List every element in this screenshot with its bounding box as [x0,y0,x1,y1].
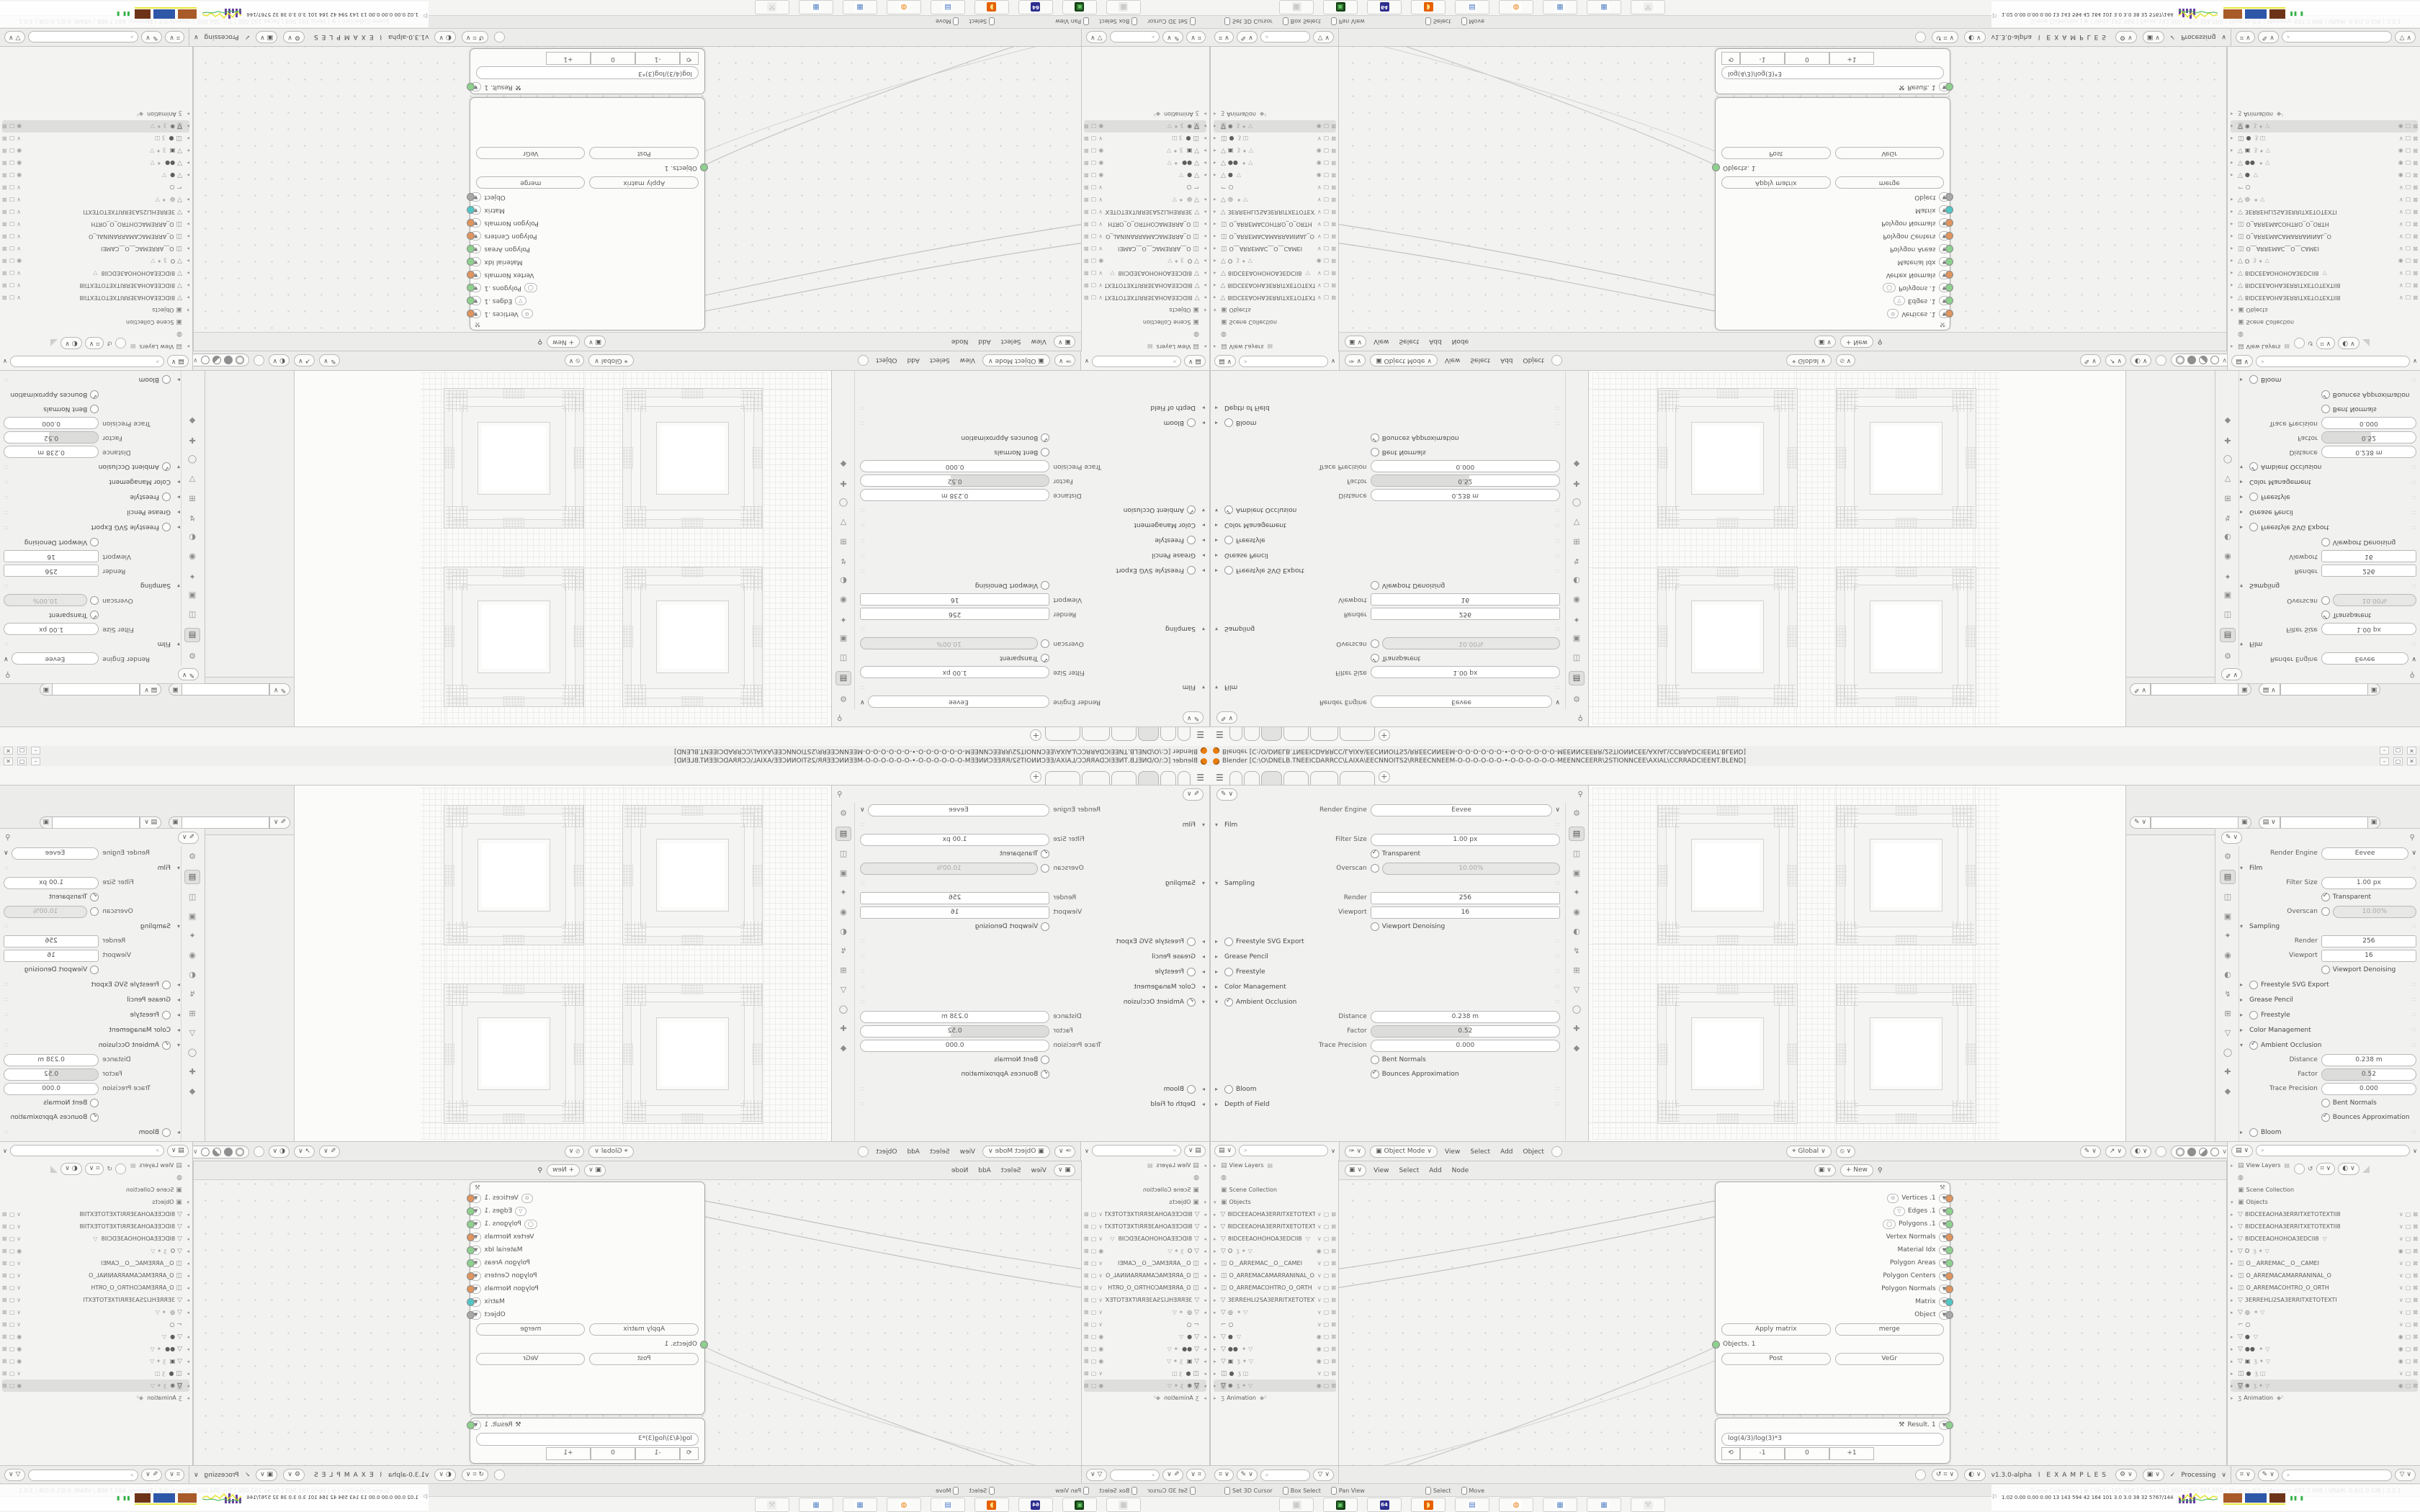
socket-dot[interactable] [467,1207,475,1215]
checkbox[interactable] [90,538,99,546]
image-id-name-field[interactable] [52,816,140,829]
value-field[interactable]: 1.00 px [860,834,1049,846]
properties-tab-icon[interactable]: ✦ [836,886,851,899]
properties-tab-icon[interactable]: ◯ [185,453,200,466]
checkbox[interactable] [1371,639,1379,648]
hide-toggle[interactable]: ∨ [17,1321,21,1328]
render-toggle[interactable]: ⊠ [1084,123,1089,130]
display-mode-icon[interactable]: ▤∨ [1214,356,1236,368]
screen-toggle[interactable]: ▢ [2406,148,2411,154]
copy-icon[interactable]: ▣ [40,683,53,696]
object-row[interactable]: ▸◫O_ARREMACAMARRANINAL_O∨▢⊠ [1214,1269,1336,1282]
menu-select[interactable]: Select [930,1148,950,1156]
checkbox[interactable] [1224,998,1233,1007]
screen-toggle[interactable]: ▢ [1324,172,1330,179]
scene-row[interactable]: ◍ [1214,328,1336,341]
screen-toggle[interactable]: ▢ [9,172,15,179]
brush-id-name-field[interactable] [181,683,269,696]
properties-tab-icon[interactable]: ▽ [2220,1027,2235,1040]
slider-field[interactable]: 0.52 [2321,1068,2416,1081]
nav-circle-icon[interactable] [494,1470,505,1480]
expr-cell[interactable]: -1 [1740,52,1785,65]
close-button[interactable]: ✕ [2407,747,2416,755]
objects-collection-row[interactable]: ▾▣Objects [1214,304,1336,316]
wrench-icon[interactable]: ⚒ [1940,1184,1945,1192]
annotation-circle-icon[interactable] [858,355,869,366]
section-color-management[interactable]: ▸Color Management∷ [4,1022,180,1038]
render-toggle[interactable]: ⊠ [1084,1236,1089,1242]
orientation-dropdown[interactable]: ⌖Global∨ [588,354,633,366]
properties-tab-icon[interactable]: ↯ [836,554,851,567]
pinned-app-ghost[interactable]: ▦ [1279,0,1314,14]
material-shading-icon[interactable] [212,356,221,365]
object-row[interactable]: ▸◫O_ARREMACAMARRANINAL_O∨▢⊠ [2231,1269,2418,1282]
socket-dot[interactable] [467,1298,475,1306]
render-toggle[interactable]: ⊠ [2,172,7,179]
refresh-icon[interactable]: ↺ [2308,1166,2313,1173]
object-row[interactable]: ▸▽3ERREHLI2SA3ERRITXETOTEXTI∨▢⊠ [1214,206,1336,218]
properties-tab-icon[interactable]: ◐ [185,531,200,544]
workspace-tab[interactable] [1082,727,1110,741]
node-button-post[interactable]: Post [1721,147,1831,159]
firefox[interactable]: ◗ [974,0,1009,14]
section-depth-of-field[interactable]: ▸Depth of Field∷ [860,400,1205,415]
render-engine-dropdown[interactable]: Eevee [12,653,99,665]
render-toggle[interactable]: ⊠ [2,148,7,154]
screen-toggle[interactable]: ▢ [9,1297,15,1303]
render-toggle[interactable]: ⊠ [2413,294,2418,301]
hide-toggle[interactable]: ∨ [1098,209,1103,215]
socket-dot[interactable] [467,1194,475,1202]
animation-row[interactable]: ▸ʒAnimation◆² [2,1392,189,1404]
rendered-shading-icon[interactable] [2210,356,2219,365]
render-toggle[interactable]: ⊠ [1331,294,1336,301]
scene-row[interactable]: ◍ [1084,328,1206,341]
render-toggle[interactable]: ⊠ [1331,1211,1336,1218]
node-button-post[interactable]: Post [590,1353,699,1365]
screen-toggle[interactable]: ▢ [2406,1346,2411,1352]
pinned-app-ghost-2[interactable]: ⚒ [1631,1498,1665,1512]
properties-tab-icon[interactable]: ▣ [2220,910,2235,923]
render-toggle[interactable]: ⊠ [1331,172,1336,179]
an-editor-icon[interactable]: ▣∨ [2143,1469,2164,1481]
screen-toggle[interactable]: ▢ [2406,197,2411,203]
properties-tab-icon[interactable]: ↯ [836,945,851,958]
screen-toggle[interactable]: ▢ [1324,221,1330,228]
image-id-icon[interactable]: ▤∨ [140,816,161,829]
checkbox[interactable] [1041,654,1049,662]
node-button-vegr[interactable]: VeGr [1835,147,1945,159]
properties-tab-icon[interactable]: ⊞ [1569,964,1584,977]
screen-toggle[interactable]: ▢ [1324,258,1330,264]
object-row[interactable]: ▸▽◎✦ ▽∨▢⊠ [2,194,189,206]
properties-tab-icon[interactable]: ⚙ [836,807,851,820]
pin-icon[interactable]: ⚲ [837,791,842,798]
add-workspace-button[interactable]: + [1030,771,1041,783]
properties-tab-icon[interactable]: ◫ [1569,847,1584,860]
socket-dot[interactable] [467,1285,475,1293]
outliner-search-input[interactable]: ⌕ [10,1145,164,1156]
scene-collection-row[interactable]: ▣Scene Collection [2,316,189,328]
checkbox[interactable] [2321,596,2330,605]
render-toggle[interactable]: ⊠ [2,246,7,252]
object-row[interactable]: ▸▽⊕ʒ ✦ ▽◉▢⊠ [1214,1380,1336,1392]
hide-toggle[interactable]: ∨ [2399,197,2403,203]
hide-toggle[interactable]: ◉ [1098,1248,1103,1254]
section-freestyle-svg-export[interactable]: ▸Freestyle SVG Export∷ [2240,520,2416,535]
image-id-icon[interactable]: ▤∨ [2259,816,2280,829]
value-field[interactable]: 0.000 [1371,461,1560,473]
render-toggle[interactable]: ⊠ [1084,270,1089,276]
menu-select[interactable]: Select [1001,1167,1021,1174]
firefox[interactable]: ◗ [974,1498,1009,1512]
value-field[interactable]: 0.000 [860,461,1049,473]
object-row[interactable]: ▸▽●●✦ ▽◉▢⊠ [2,157,189,169]
screen-toggle[interactable]: ▢ [1091,135,1097,142]
properties-tab-icon[interactable]: ▽ [185,1027,200,1040]
object-row[interactable]: ▸◫●ʒ ◫∨▢⊠ [1214,1367,1336,1380]
blender-app[interactable]: ◍ [887,1498,921,1512]
workspace-tab[interactable] [1340,771,1375,785]
object-row[interactable]: ⌐○∨▢⊠ [2,1318,189,1331]
section-film[interactable]: ▾Film∷ [1215,680,1560,695]
screen-toggle[interactable]: ▢ [2406,270,2411,276]
options-circle-icon[interactable] [2156,355,2166,366]
scene-collection-row[interactable]: ▣Scene Collection [2,1184,189,1196]
section-freestyle-svg-export[interactable]: ▸Freestyle SVG Export∷ [860,934,1205,949]
hide-toggle[interactable]: ∨ [1098,197,1103,203]
value-field[interactable]: 0.238 m [1371,490,1560,502]
blender-app[interactable]: ◍ [1499,0,1533,14]
render-toggle[interactable]: ⊠ [1331,258,1336,264]
value-field[interactable]: 10.00% [860,638,1038,650]
checkbox[interactable] [90,1099,99,1107]
hide-toggle[interactable]: ∨ [2399,1236,2403,1242]
screen-toggle[interactable]: ▢ [2406,209,2411,215]
object-row[interactable]: ▸▽8IDCEEAOHOHOA3EDCII8▽∨▢⊠ [1084,1233,1206,1245]
render-toggle[interactable]: ⊠ [2413,1248,2418,1254]
properties-tab-icon[interactable]: ▣ [836,632,851,645]
snap-magnet-icon[interactable]: ⦸∨ [565,354,584,366]
screen-toggle[interactable]: ▢ [9,123,15,130]
nav-circle-icon[interactable] [1915,1470,1926,1480]
checkbox[interactable] [2321,1099,2330,1107]
screen-toggle[interactable]: ▢ [1091,1248,1097,1254]
section-film[interactable]: ▾Film∷ [860,817,1205,832]
screen-toggle[interactable]: ▢ [9,1260,15,1266]
hide-toggle[interactable]: ◉ [2398,1382,2403,1389]
hide-toggle[interactable]: ∨ [2399,1211,2403,1218]
checkbox[interactable] [1371,864,1379,873]
object-row[interactable]: ▸◫O_ARREMACOHTRO_O_ORTH∨▢⊠ [1084,218,1206,230]
calculator[interactable]: ▦ [1543,1498,1577,1512]
properties-tab-icon[interactable]: ⊞ [2220,492,2235,505]
objects-collection-row[interactable]: ▾▣Objects [2231,304,2418,316]
hide-toggle[interactable]: ∨ [1098,1297,1103,1303]
screen-toggle[interactable]: ▢ [1091,1297,1097,1303]
xray-icon[interactable]: ◐∨ [2130,1146,2151,1158]
render-toggle[interactable]: ⊠ [1331,1321,1336,1328]
properties-tab-icon[interactable]: ▣ [185,910,200,923]
menu-hamburger-icon[interactable]: ☰ [1216,729,1224,739]
render-toggle[interactable]: ⊠ [2,221,7,228]
socket-dot[interactable] [467,1220,475,1228]
socket-dot[interactable] [467,1272,475,1280]
render-toggle[interactable]: ⊠ [1084,135,1089,142]
render-toggle[interactable]: ⊠ [2413,270,2418,276]
screen-toggle[interactable]: ▢ [2406,1248,2411,1254]
socket-dot[interactable] [467,1259,475,1267]
copy-icon[interactable]: ▣ [2368,816,2381,829]
outliner-search-input[interactable]: ⌕ [1239,356,1328,367]
screen-toggle[interactable]: ▢ [9,1358,15,1364]
hide-toggle[interactable]: ◉ [1317,1346,1322,1352]
hide-toggle[interactable]: ∨ [17,233,21,240]
hide-toggle[interactable]: ∨ [17,1297,21,1303]
hide-toggle[interactable]: ∨ [17,135,21,142]
hide-toggle[interactable]: ∨ [1098,1236,1103,1242]
render-toggle[interactable]: ⊠ [1084,1346,1089,1352]
section-grease-pencil[interactable]: ▸Grease Pencil∷ [860,548,1205,563]
render-toggle[interactable]: ⊠ [1331,123,1336,130]
screen-toggle[interactable]: ▢ [9,197,15,203]
checkbox[interactable] [162,463,171,472]
render-toggle[interactable]: ⊠ [1331,209,1336,215]
section-freestyle-svg-export[interactable]: ▸Freestyle SVG Export∷ [1215,934,1560,949]
hide-toggle[interactable]: ∨ [1317,197,1322,203]
section-color-management[interactable]: ▸Color Management∷ [2240,1022,2416,1038]
properties-tab-icon[interactable]: ✚ [1569,1022,1584,1035]
value-field[interactable]: 0.000 [4,418,99,430]
screen-toggle[interactable]: ▢ [9,1309,15,1315]
properties-tab-icon[interactable]: ✦ [185,930,200,942]
value-field[interactable]: 1.00 px [4,624,99,636]
checkbox[interactable] [1371,433,1379,442]
object-row[interactable]: ▸▽Oʒ ✦ ▽◉▢⊠ [2,255,189,267]
properties-tab-icon[interactable]: ▽ [185,472,200,485]
object-row[interactable]: ▸▽▣ʒ ✦ ▽◉▢⊠ [1084,145,1206,157]
socket-dot[interactable] [1945,1194,1953,1202]
object-row[interactable]: ▸▽8IDCEEAOHA3ERRITXETOTEXTII8∨▢⊠ [1084,292,1206,304]
hide-toggle[interactable]: ∨ [2399,1260,2403,1266]
hide-toggle[interactable]: ◉ [17,1346,22,1352]
area-resize-corner-icon[interactable] [50,1166,58,1173]
properties-tab-icon[interactable]: ◆ [836,1042,851,1055]
section-grease-pencil[interactable]: ▸Grease Pencil∷ [860,949,1205,964]
filter-type-icon[interactable]: ⌗∨ [165,1469,184,1481]
section-color-management[interactable]: ▸Color Management∷ [4,474,180,490]
copy-icon[interactable]: ▣ [169,683,181,696]
value-field[interactable]: 256 [860,608,1049,621]
checkbox[interactable] [1187,1085,1196,1094]
checkbox[interactable] [1224,506,1233,515]
object-row[interactable]: ▸▽3ERREHLI2SA3ERRITXETOTEXTI∨▢⊠ [1214,1294,1336,1306]
object-row[interactable]: ▸▽●●✦ ▽◉▢⊠ [1214,157,1336,169]
node-button-vegr[interactable]: VeGr [476,1353,586,1365]
refresh-icon[interactable]: ↺ [107,340,112,347]
value-field[interactable]: 1.00 px [1371,834,1560,846]
node-button-merge[interactable]: merge [1835,1323,1945,1336]
value-field[interactable]: 0.238 m [4,1054,99,1066]
properties-tab-icon[interactable]: ◆ [836,457,851,470]
object-row[interactable]: ⌐○∨▢⊠ [2231,181,2418,194]
render-toggle[interactable]: ⊠ [2,135,7,142]
new-nodetree-button[interactable]: + New [1840,336,1873,348]
workspace-tab[interactable] [1229,727,1242,741]
screen-toggle[interactable]: ▢ [1324,1236,1330,1242]
pin-icon[interactable]: ⚲ [2410,671,2415,679]
overlays-icon[interactable]: ↗∨ [2105,354,2126,366]
copy-icon[interactable]: ▣ [2238,683,2251,696]
checkbox[interactable] [2321,390,2330,399]
properties-tab-icon[interactable]: ◆ [2220,1085,2235,1098]
render-toggle[interactable]: ⊠ [2,1297,7,1303]
animation-row[interactable]: ▸ʒAnimation◆² [1214,1392,1336,1404]
rendered-shading-icon[interactable] [201,356,210,365]
expr-cell[interactable]: ⟲ [680,1447,699,1460]
an-editor-icon[interactable]: ▣∨ [256,1469,277,1481]
section-depth-of-field[interactable]: ▸Depth of Field∷ [1215,1097,1560,1112]
object-row[interactable]: ▸◫O_ARREMACAMARRANINAL_O∨▢⊠ [1084,1269,1206,1282]
render-toggle[interactable]: ⊠ [2413,246,2418,252]
checkbox[interactable] [162,1011,171,1020]
pinned-app-ghost[interactable]: ▦ [1106,0,1141,14]
hide-toggle[interactable]: ∨ [17,270,21,276]
checkbox[interactable] [2249,523,2258,532]
object-row[interactable]: ▸▽8IDCEEAOHOHOA3EDCII8▽∨▢⊠ [2,267,189,279]
display-mode-icon[interactable]: ▤∨ [1184,1145,1206,1157]
filter-type-icon[interactable]: ⌗∨ [1186,1469,1206,1481]
calculator-2[interactable]: ▦ [1587,1498,1621,1512]
object-row[interactable]: ⌐○∨▢⊠ [1214,181,1336,194]
expr-cell[interactable]: -1 [635,1447,680,1460]
floppy-64-app[interactable]: 64 [1018,1498,1053,1512]
calculator[interactable]: ▦ [843,1498,877,1512]
screen-toggle[interactable]: ▢ [1324,1223,1330,1230]
render-toggle[interactable]: ⊠ [2413,1333,2418,1340]
render-engine-dropdown[interactable]: Eevee [2321,847,2409,860]
screen-toggle[interactable]: ▢ [9,1284,15,1291]
screen-toggle[interactable]: ▢ [2406,1272,2411,1279]
section-film[interactable]: ▾Film∷ [2240,860,2416,876]
properties-tab-icon[interactable]: ◆ [185,1085,200,1098]
scene-row[interactable]: ◍ [1084,1171,1206,1184]
screen-toggle[interactable]: ▢ [1091,1284,1097,1291]
checkbox[interactable] [2249,1128,2258,1137]
expression-input[interactable]: log(4/3)/log(3)*3 [476,1433,699,1446]
brush-id-icon[interactable]: ✎∨ [269,816,290,829]
expr-cell[interactable]: ⟲ [1721,1447,1740,1460]
blender-app[interactable]: ◍ [1499,1498,1533,1512]
hide-toggle[interactable]: ◉ [1317,172,1322,179]
workspace-tab[interactable] [1310,771,1338,785]
pin-icon[interactable]: ⚲ [837,714,842,722]
expr-cell[interactable]: +1 [1829,1447,1874,1460]
hide-toggle[interactable]: ∨ [17,1260,21,1266]
section-bloom[interactable]: ▸Bloom∷ [2240,1125,2416,1140]
screen-toggle[interactable]: ▢ [2406,135,2411,142]
snap-magnet-icon[interactable]: ⦸∨ [565,1146,584,1158]
hide-toggle[interactable]: ∨ [2399,270,2403,276]
properties-tab-icon[interactable]: ↯ [1569,554,1584,567]
properties-tab-icon[interactable]: ▽ [836,516,851,528]
image-id-name-field[interactable] [2280,816,2368,829]
view-layers-row[interactable]: ▸▤View Layers▤ [1084,1159,1206,1171]
menu-hamburger-icon[interactable]: ☰ [1196,729,1204,739]
animation-row[interactable]: ▸ʒAnimation◆² [2,108,189,120]
object-row[interactable]: ▸◫O_ARREMACOHTRO_O_ORTH∨▢⊠ [1214,218,1336,230]
pinned-app-ghost-2[interactable]: ⚒ [1631,0,1665,14]
node-button-vegr[interactable]: VeGr [1835,1353,1945,1365]
render-toggle[interactable]: ⊠ [1084,246,1089,252]
wrench-icon[interactable]: ⚒ [475,1184,480,1192]
filter-dropdown-icon[interactable]: ∨ [1331,1148,1335,1154]
render-toggle[interactable]: ⊠ [2413,1211,2418,1218]
screen-toggle[interactable]: ▢ [2406,221,2411,228]
image-id-icon[interactable]: ▤∨ [2259,683,2280,696]
scene-collection-row[interactable]: ▣Scene Collection [1084,316,1206,328]
object-row[interactable]: ▸▽▣ʒ ✦ ▽◉▢⊠ [1214,1355,1336,1367]
expr-cell[interactable]: +1 [546,52,591,65]
section-sampling[interactable]: ▾Sampling∷ [860,621,1205,636]
node-button-apply-matrix[interactable]: Apply matrix [590,1323,699,1336]
display-filter-icon[interactable]: ✎∨ [2258,31,2279,43]
render-toggle[interactable]: ⊠ [1084,1309,1089,1315]
object-row[interactable]: ▸▽⊕ʒ ✦ ▽◉▢⊠ [2231,120,2418,132]
screen-toggle[interactable]: ▢ [1091,233,1097,240]
hide-toggle[interactable]: ∨ [17,1236,21,1242]
render-toggle[interactable]: ⊠ [1084,1358,1089,1364]
render-toggle[interactable]: ⊠ [1084,233,1089,240]
hide-toggle[interactable]: ∨ [1317,294,1322,301]
checkbox[interactable] [1187,567,1196,575]
node-button-apply-matrix[interactable]: Apply matrix [1721,1323,1831,1336]
section-ambient-occlusion[interactable]: ▾Ambient Occlusion∷ [2240,459,2416,474]
render-toggle[interactable]: ⊠ [2,1223,7,1230]
properties-tab-icon[interactable]: ▣ [1569,632,1584,645]
checkbox[interactable] [1041,864,1049,873]
socket-dot[interactable] [1712,1341,1720,1349]
hide-toggle[interactable]: ∨ [1098,1260,1103,1266]
an-settings-icon[interactable]: ⚙∨ [283,1469,305,1481]
hide-toggle[interactable]: ∨ [1098,294,1103,301]
workspace-tab[interactable] [1340,727,1375,741]
hide-toggle[interactable]: ◉ [2398,1358,2403,1364]
render-toggle[interactable]: ⊠ [2413,209,2418,215]
workspace-tab[interactable] [1045,771,1080,785]
workspace-tab[interactable] [1229,771,1242,785]
brush-id-icon[interactable]: ✎∨ [2130,816,2151,829]
pin-icon[interactable]: ⚲ [538,1167,543,1174]
object-row[interactable]: ▸▽▣ʒ ✦ ▽◉▢⊠ [2231,1355,2418,1367]
render-toggle[interactable]: ⊠ [1331,221,1336,228]
expression-input[interactable]: log(4/3)/log(3)*3 [476,66,699,79]
maximize-button[interactable]: ▢ [2393,747,2403,755]
filter-type-icon[interactable]: ⌗∨ [2236,1469,2255,1481]
object-row[interactable]: ▸▽●▽◉▢⊠ [2231,169,2418,181]
section-bloom[interactable]: ▸Bloom∷ [1215,415,1560,431]
section-depth-of-field[interactable]: ▸Depth of Field∷ [860,1097,1205,1112]
screen-toggle[interactable]: ▢ [1324,1297,1330,1303]
object-row[interactable]: ▸▽8IDCEEAOHA3ERRITXETOTEXTII8∨▢⊠ [2,292,189,304]
object-row[interactable]: ▸▽⊕ʒ ✦ ▽◉▢⊠ [2231,1380,2418,1392]
properties-tab-icon[interactable]: ◫ [185,608,200,621]
value-field[interactable]: 0.238 m [2321,1054,2416,1066]
object-row[interactable]: ▸◫O__ARREMAC__O__CAMEI∨▢⊠ [2,243,189,255]
new-nodetree-button[interactable]: + New [547,1164,580,1176]
animation-row[interactable]: ▸ʒAnimation◆² [1084,1392,1206,1404]
menu-add[interactable]: Add [1500,357,1512,364]
